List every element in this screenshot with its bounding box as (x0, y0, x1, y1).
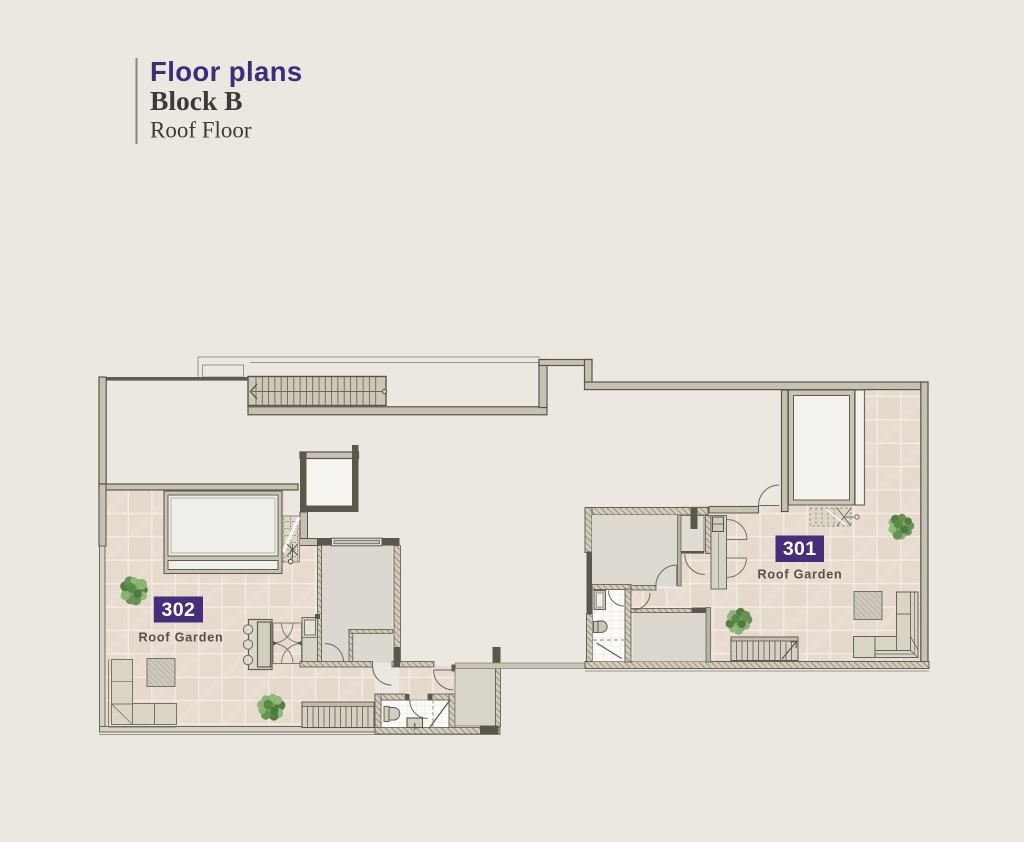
svg-text:Roof Garden: Roof Garden (757, 568, 842, 582)
svg-text:302: 302 (162, 599, 196, 621)
svg-text:Roof Floor: Roof Floor (150, 118, 252, 143)
svg-text:Block B: Block B (150, 85, 242, 116)
svg-text:Roof Garden: Roof Garden (138, 631, 223, 645)
svg-text:Floor plans: Floor plans (150, 56, 303, 87)
svg-text:301: 301 (783, 538, 817, 560)
